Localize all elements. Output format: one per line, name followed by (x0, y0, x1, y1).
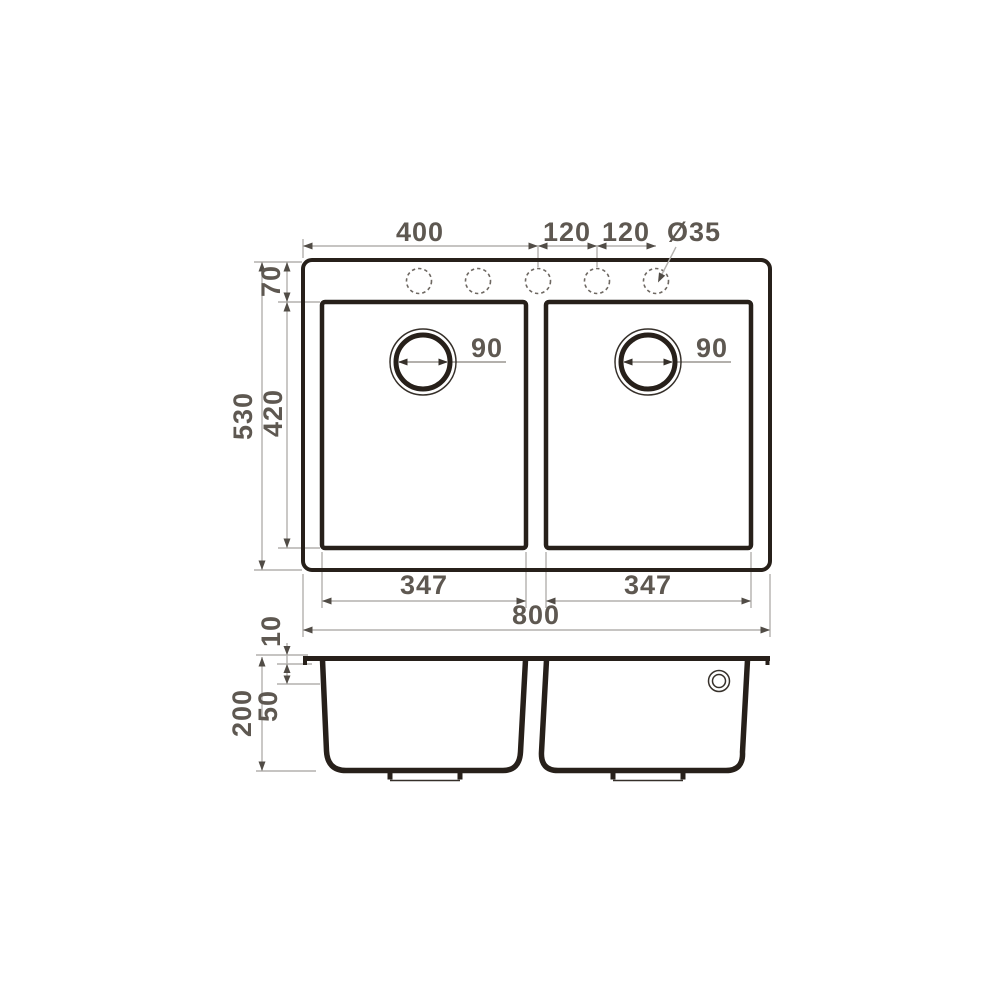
extension-lines (254, 239, 770, 771)
technical-drawing-page: 400 120 120 Ø35 530 70 420 90 90 347 347… (0, 0, 1000, 1000)
sink-outline-top-view (303, 260, 770, 570)
side-profile-right-bowl (541, 660, 747, 771)
overflow-inner-circle (713, 675, 726, 688)
dim-label-50: 50 (253, 690, 283, 722)
arrowhead-down (284, 676, 291, 685)
side-view (303, 657, 770, 781)
dim-label-347-left: 347 (400, 570, 448, 600)
dim-label-90-left: 90 (471, 333, 503, 363)
dim-label-10: 10 (256, 615, 286, 647)
faucet-hole-5 (644, 269, 669, 294)
overflow-hole (709, 671, 730, 692)
dim-label-120-b: 120 (602, 217, 650, 247)
side-view-dimensions: 10 50 200 (227, 615, 291, 771)
dim-label-800: 800 (512, 600, 560, 630)
leader-arrowhead (658, 272, 665, 282)
dim-label-200: 200 (227, 689, 257, 737)
dim-label-hole-diameter: Ø35 (667, 217, 721, 247)
faucet-hole-2 (466, 269, 491, 294)
hole-diameter-leader (660, 247, 676, 278)
faucet-hole-1 (407, 269, 432, 294)
dim-label-530: 530 (228, 392, 258, 440)
sink-technical-drawing: 400 120 120 Ø35 530 70 420 90 90 347 347… (0, 0, 1000, 1000)
dim-label-70: 70 (256, 265, 286, 297)
overflow-outer-circle (709, 671, 730, 692)
faucet-hole-3 (526, 269, 551, 294)
faucet-holes (407, 269, 669, 294)
faucet-hole-4 (585, 269, 610, 294)
dim-label-347-right: 347 (624, 570, 672, 600)
dim-label-90-right: 90 (696, 333, 728, 363)
dim-label-420: 420 (258, 389, 288, 437)
top-view (303, 260, 770, 570)
dim-label-120-a: 120 (543, 217, 591, 247)
dim-label-400: 400 (396, 217, 444, 247)
side-profile-left-bowl (323, 660, 526, 771)
arrowhead-up (284, 664, 291, 673)
